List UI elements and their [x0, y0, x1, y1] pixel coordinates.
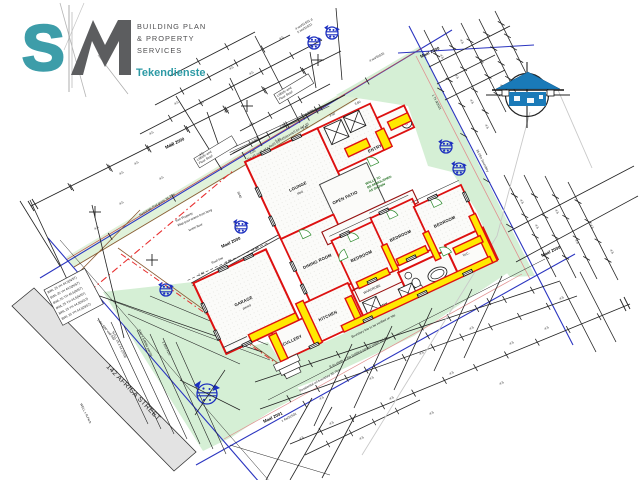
- svg-text:4.5: 4.5: [389, 395, 395, 401]
- svg-text:4.5: 4.5: [278, 35, 284, 41]
- svg-text:4.5: 4.5: [499, 380, 505, 386]
- svg-text:lorem floor: lorem floor: [188, 222, 204, 232]
- svg-text:4.5: 4.5: [148, 130, 154, 136]
- svg-text:Roof line: Roof line: [211, 256, 224, 265]
- svg-text:SERVICES: SERVICES: [137, 46, 182, 55]
- svg-text:4.5: 4.5: [589, 224, 595, 230]
- svg-text:WELL x N.Fw.b: WELL x N.Fw.b: [79, 403, 92, 425]
- svg-text:4.5: 4.5: [118, 170, 124, 176]
- svg-text:BUILDING PLAN: BUILDING PLAN: [137, 22, 206, 31]
- svg-text:4.5: 4.5: [534, 224, 540, 230]
- svg-text:4.5: 4.5: [118, 200, 124, 206]
- svg-text:4.5: 4.5: [299, 435, 305, 441]
- svg-text:& PROPERTY: & PROPERTY: [137, 34, 195, 43]
- svg-text:Maal 2000: Maal 2000: [220, 235, 241, 249]
- svg-text:4.5: 4.5: [158, 175, 164, 181]
- svg-text:4.5: 4.5: [248, 121, 254, 127]
- svg-text:4.5: 4.5: [454, 74, 460, 80]
- svg-text:S: S: [22, 12, 65, 84]
- svg-text:3.98: 3.98: [251, 137, 259, 143]
- svg-text:4.5: 4.5: [133, 160, 139, 166]
- svg-text:Maal 2000: Maal 2000: [540, 244, 561, 258]
- svg-text:4.5: 4.5: [329, 420, 335, 426]
- svg-text:4.5: 4.5: [469, 325, 475, 331]
- svg-text:N.G.L 15,4 54 (2/S3): N.G.L 15,4 54 (2/S3): [111, 331, 127, 359]
- svg-text:4.5: 4.5: [439, 54, 445, 60]
- svg-text:4.5: 4.5: [469, 99, 475, 105]
- svg-text:4.5: 4.5: [544, 325, 550, 331]
- svg-text:4.5: 4.5: [484, 124, 490, 130]
- svg-text:4.5: 4.5: [449, 370, 455, 376]
- svg-text:4.5: 4.5: [359, 435, 365, 441]
- svg-text:4.5: 4.5: [559, 295, 565, 301]
- svg-text:4.5: 4.5: [93, 225, 99, 231]
- svg-text:4.5: 4.5: [459, 39, 465, 45]
- svg-text:4.5: 4.5: [609, 249, 615, 255]
- svg-text:4.5: 4.5: [369, 375, 375, 381]
- svg-text:4.5: 4.5: [554, 209, 560, 215]
- svg-text:2.50: 2.50: [225, 258, 233, 264]
- svg-text:4.5: 4.5: [519, 199, 525, 205]
- svg-text:1.8m B/W wall bdy: 1.8m B/W wall bdy: [96, 318, 116, 341]
- svg-text:3040: 3040: [236, 191, 243, 199]
- svg-text:4 wn/31S31: 4 wn/31S31: [369, 51, 386, 63]
- svg-text:Tekendienste: Tekendienste: [136, 67, 206, 79]
- svg-text:4.5: 4.5: [319, 395, 325, 401]
- svg-text:4.5: 4.5: [479, 59, 485, 65]
- svg-text:4.5: 4.5: [429, 410, 435, 416]
- svg-text:4.5: 4.5: [509, 340, 515, 346]
